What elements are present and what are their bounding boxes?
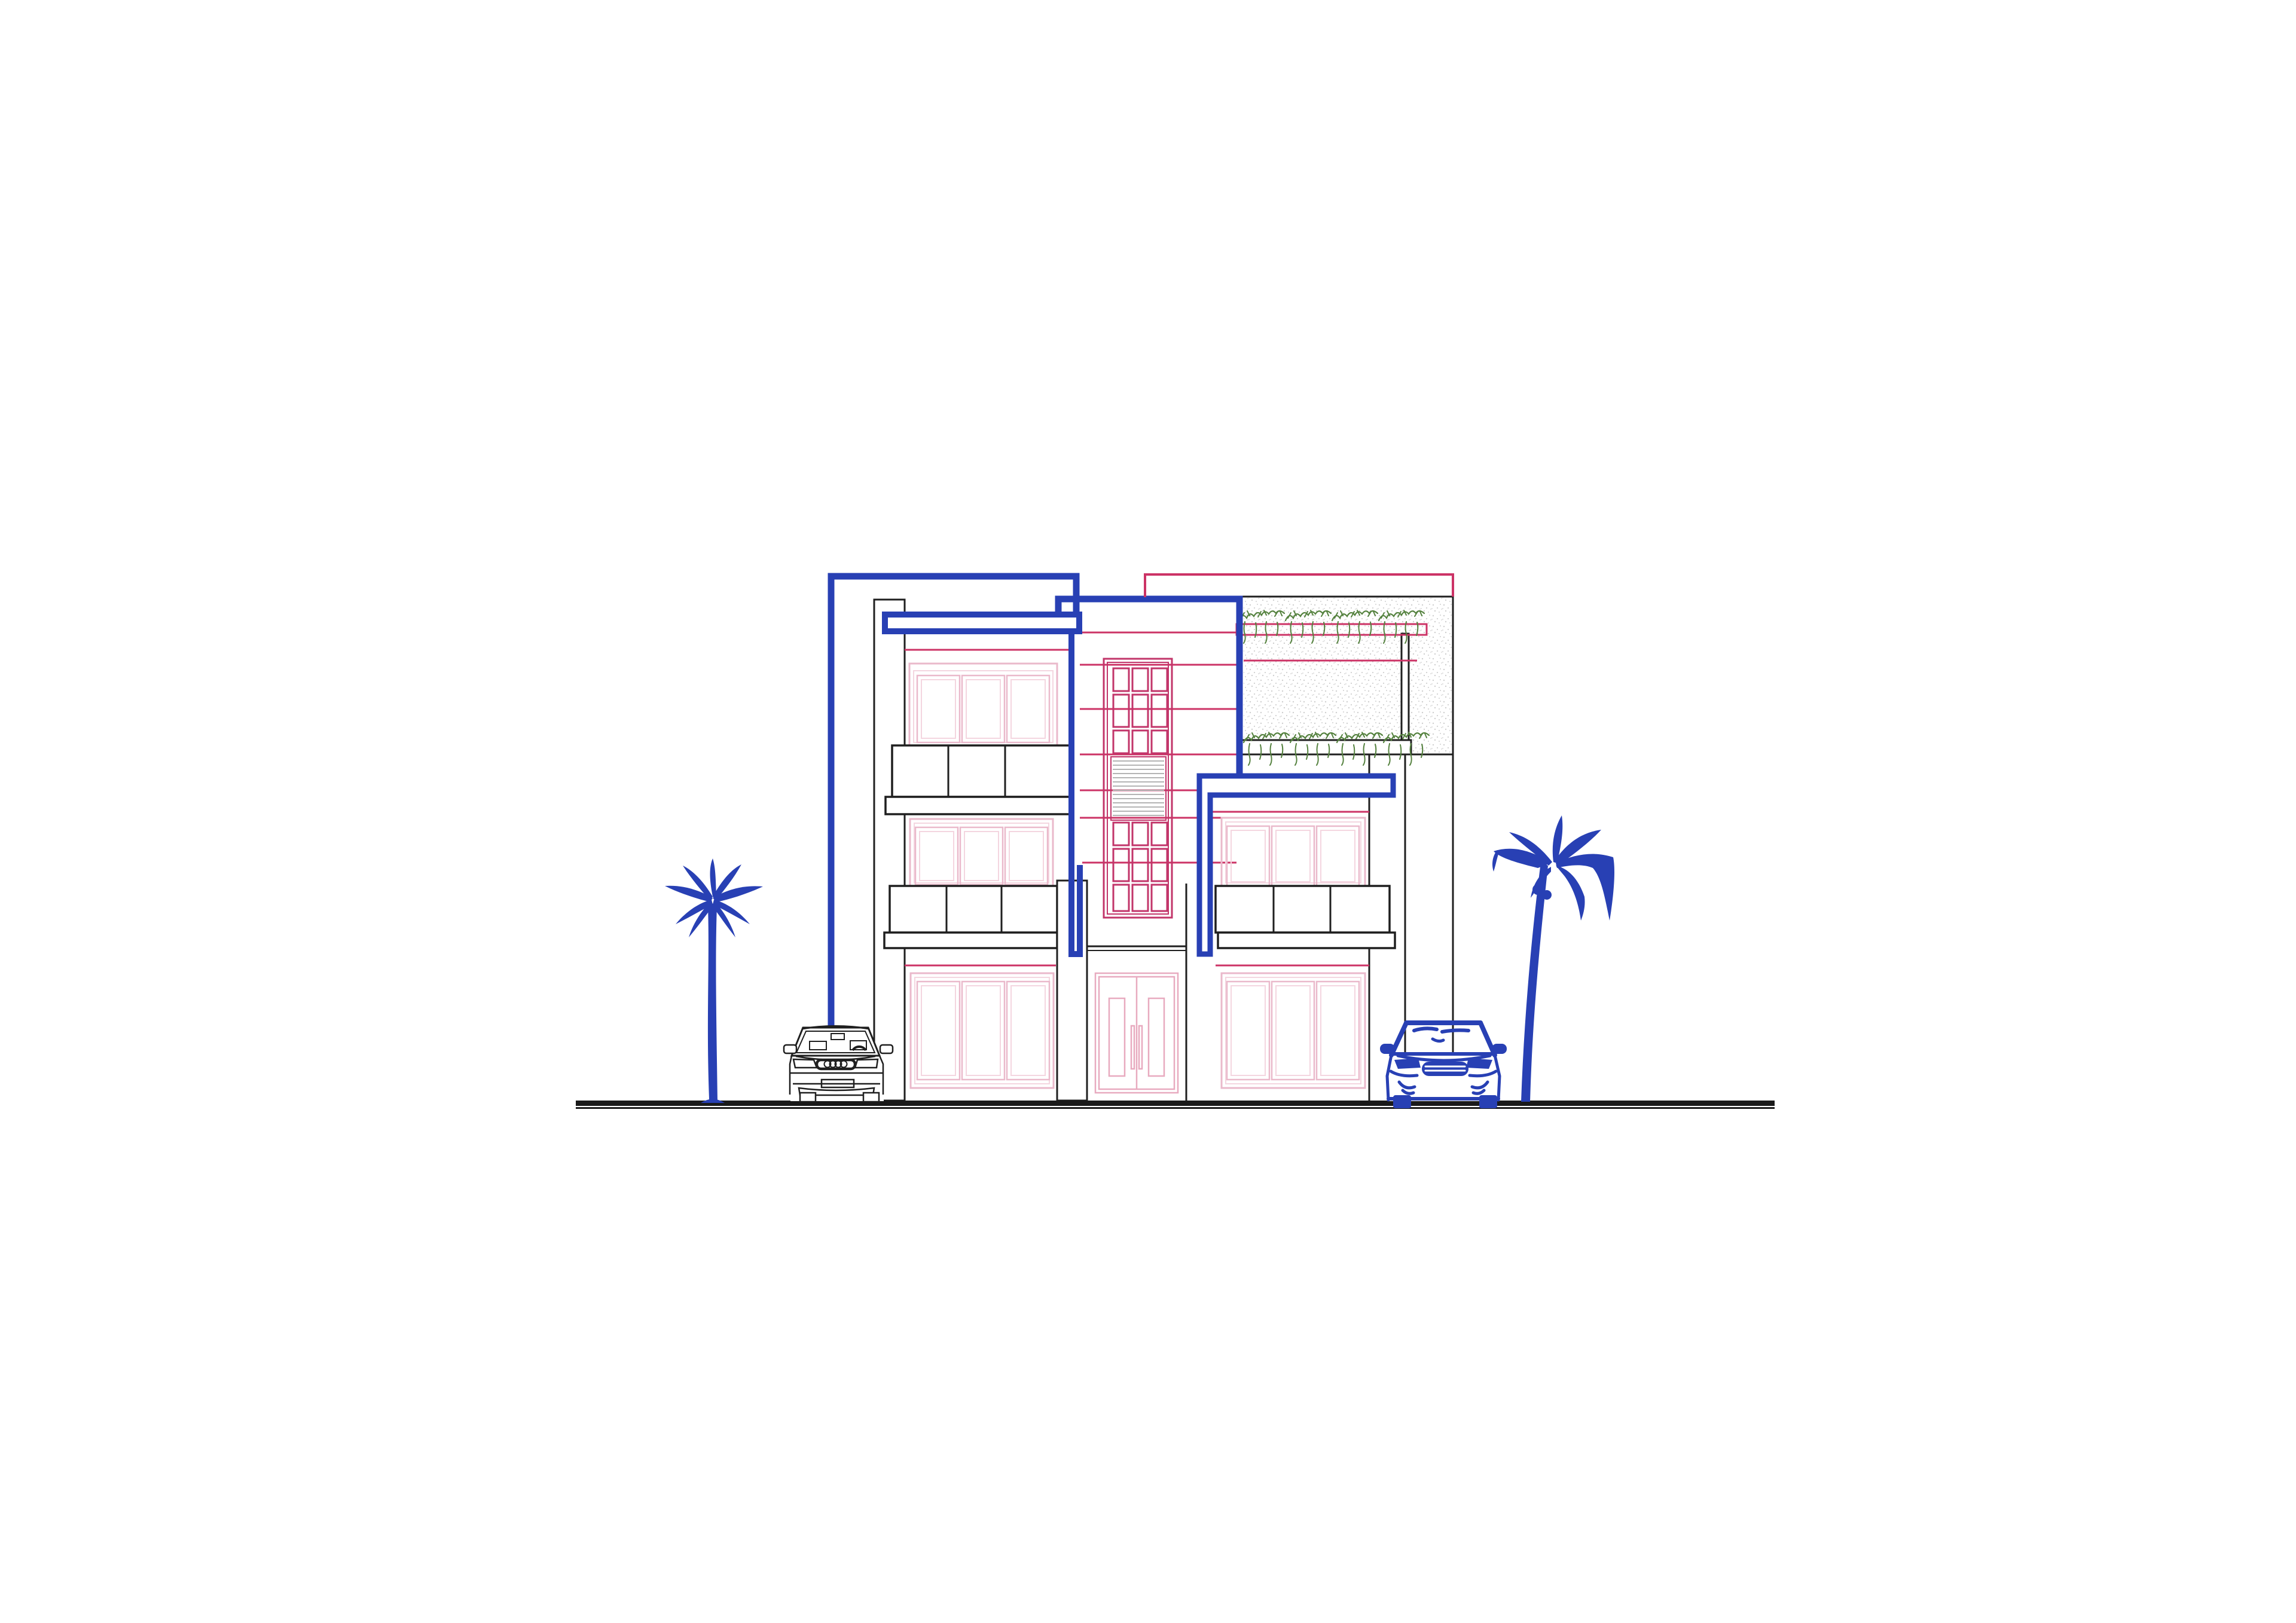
left-fascia-band (885, 615, 1079, 631)
pergola-post (1402, 634, 1409, 740)
balcony-right-second-floor (1216, 886, 1395, 948)
ground-line (576, 1101, 1775, 1109)
side-mirror-right (880, 1045, 893, 1053)
balcony-slab (886, 797, 1071, 814)
coconut (1542, 890, 1552, 900)
elevation-drawing (0, 0, 2296, 1623)
wheel-right (863, 1093, 879, 1102)
balcony-slab (1218, 933, 1395, 948)
side-mirror-left (784, 1045, 796, 1053)
stippled-terrace-wall (1244, 598, 1452, 754)
terrace-planter-slab (1241, 740, 1411, 754)
wheel-right (1479, 1095, 1497, 1108)
parapet-column (874, 600, 905, 1101)
page-canvas: { "page": { "title": "Modern House Front… (0, 0, 2296, 1623)
headlight-right (1466, 1058, 1492, 1069)
wheel-left (800, 1093, 816, 1102)
coconut (1532, 884, 1543, 895)
balcony-left-third-floor (886, 745, 1071, 814)
double-entry-door (1095, 973, 1178, 1093)
balcony-slab (884, 933, 1057, 948)
balcony-left-second-floor (884, 886, 1057, 948)
wheel-left (1393, 1095, 1411, 1108)
grille (1422, 1062, 1468, 1076)
headlight-left (1394, 1058, 1421, 1069)
